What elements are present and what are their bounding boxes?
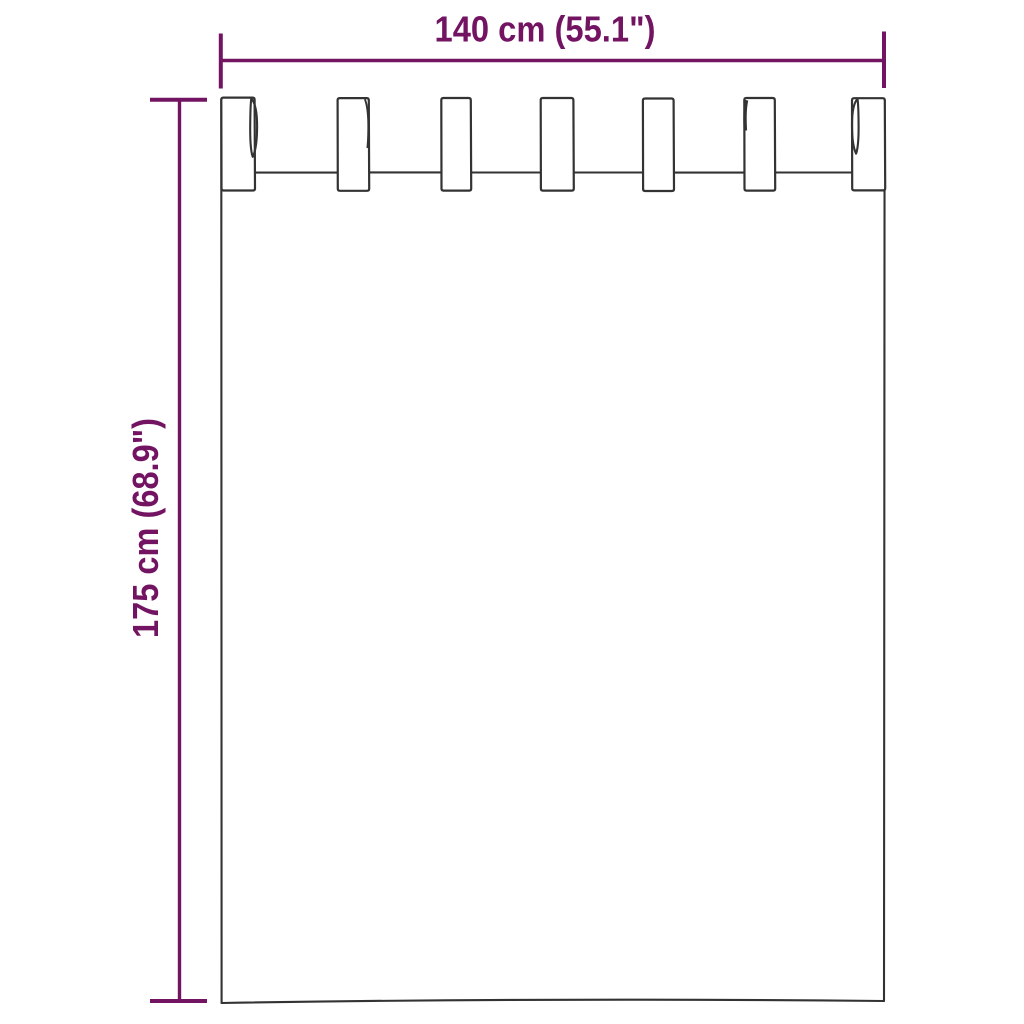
svg-text:140 cm (55.1"): 140 cm (55.1") bbox=[435, 9, 656, 50]
svg-text:175 cm (68.9"): 175 cm (68.9") bbox=[125, 418, 166, 638]
